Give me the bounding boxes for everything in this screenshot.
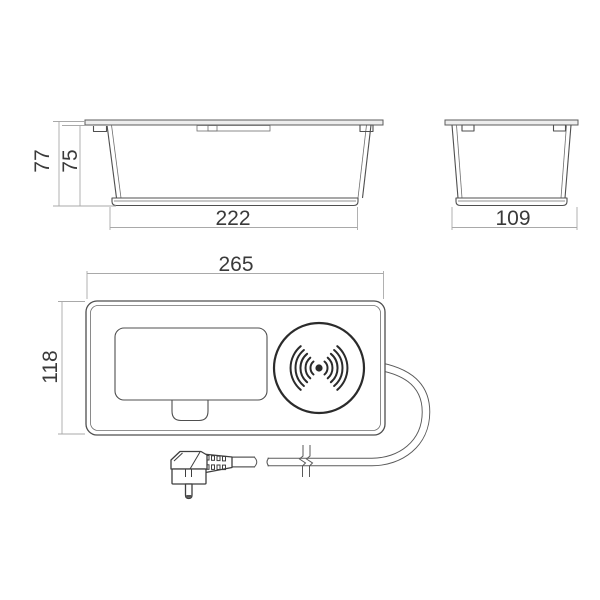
dim-label-overall-width: 265 (218, 253, 253, 276)
plug-pin-tip (186, 495, 191, 498)
front-flange (85, 120, 383, 125)
dim-label-body-depth: 109 (495, 207, 530, 230)
top-outer-frame (86, 301, 385, 435)
front-left-wall (107, 125, 117, 198)
dim-label-overall-depth: 118 (39, 350, 62, 383)
front-right-wall-inner (358, 125, 367, 198)
product-technical-drawing: 77 75 222 109 (0, 0, 600, 600)
front-right-wall (363, 125, 372, 198)
front-bottom-lip (112, 198, 358, 206)
side-bottom-lip (456, 198, 567, 206)
technical-drawing-canvas: 77 75 222 109 (0, 0, 600, 600)
front-elevation-view: 77 75 222 (31, 120, 383, 230)
charging-icon-dot (315, 364, 322, 371)
front-left-wall-inner (112, 125, 122, 198)
top-plan-view: 265 118 (39, 253, 385, 435)
dim-label-overall-height: 77 (31, 149, 54, 172)
schuko-plug-icon (171, 452, 257, 499)
side-right-clip (554, 125, 566, 131)
dim-label-body-width: 222 (215, 207, 250, 230)
dim-label-body-height: 75 (59, 149, 82, 172)
plug-base (172, 469, 206, 484)
front-left-clip (94, 125, 107, 132)
side-elevation-view: 109 (445, 120, 578, 230)
side-flange (445, 120, 578, 125)
plug-body (171, 452, 207, 470)
front-latch-clip (208, 126, 217, 132)
side-left-clip (462, 125, 474, 131)
